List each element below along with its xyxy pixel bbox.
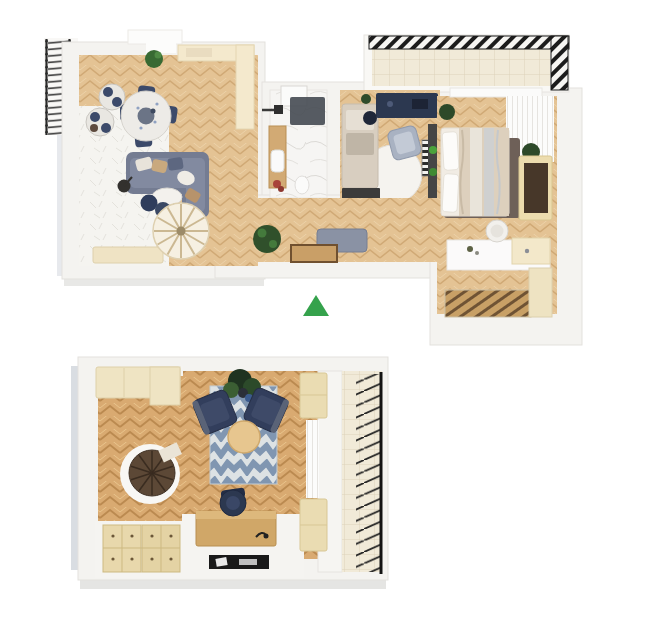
cream-cabinet	[512, 238, 550, 264]
floor-plan-rendering	[0, 0, 660, 643]
pillow	[442, 132, 459, 171]
potted-plant-icon	[439, 104, 455, 120]
shelf-plant-icon	[429, 168, 437, 176]
sliding-door-closet	[445, 290, 531, 317]
white-curtain	[306, 420, 319, 498]
balcony-tiles	[372, 49, 550, 86]
balcony-railing-icon	[356, 374, 382, 572]
bathroom	[262, 86, 327, 198]
chest-of-drawers	[103, 525, 180, 572]
round-coffee-table	[228, 421, 260, 453]
shower	[290, 97, 325, 125]
navy-pouf	[141, 195, 158, 212]
bedroom	[437, 88, 557, 317]
toilet	[295, 176, 309, 194]
cream-cabinet	[529, 268, 552, 317]
wood-doormat	[291, 245, 337, 262]
pillow	[442, 174, 459, 213]
green-triangle-marker	[303, 295, 329, 316]
potted-plant-icon	[253, 225, 281, 253]
spiral-staircase-upper	[153, 203, 209, 259]
shadow-bottom	[64, 279, 264, 286]
balcony-top-right	[364, 35, 569, 92]
desk-plant-icon	[361, 94, 371, 104]
balcony-railing-icon	[551, 36, 568, 90]
hallway	[214, 198, 442, 262]
desk-flowers-icon	[467, 246, 473, 252]
lower-floor-plan	[71, 357, 388, 589]
laptop-icon	[412, 99, 428, 109]
office-chair	[220, 487, 246, 516]
balcony-railing-icon	[369, 36, 569, 49]
shelf-plant-icon	[429, 146, 437, 154]
balcony-right	[318, 371, 382, 574]
stool	[363, 111, 377, 125]
shadow-bottom	[80, 580, 386, 589]
window	[450, 88, 542, 97]
sideboard	[93, 247, 163, 263]
upper-floor-plan	[44, 30, 582, 345]
pillow	[167, 157, 184, 171]
floor-plan-canvas	[0, 0, 660, 643]
sink	[271, 150, 284, 172]
home-office	[340, 90, 440, 212]
window-ledge	[128, 30, 182, 44]
navy-desk	[376, 93, 438, 118]
kitchen-counter	[236, 45, 254, 129]
